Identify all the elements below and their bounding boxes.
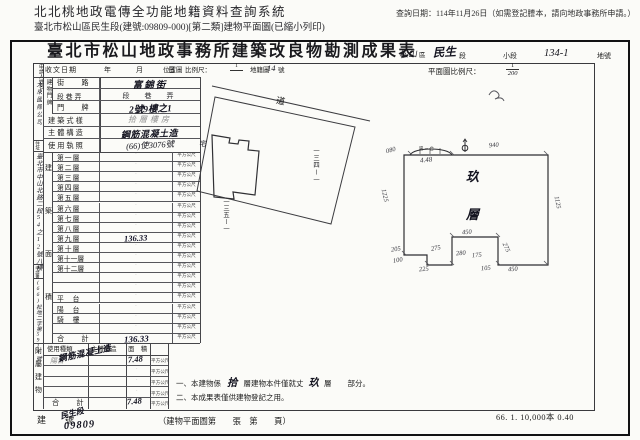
stamp-scribble bbox=[489, 91, 504, 101]
dim-205: 205 bbox=[391, 245, 402, 253]
location-scale-label: 比例尺： bbox=[185, 67, 211, 74]
hw-section-name: 民生 bbox=[433, 46, 457, 60]
street-label: 街 路 bbox=[52, 77, 100, 88]
hw-plan-scale-denominator: 200 bbox=[508, 70, 518, 77]
annex-empty-dot: · bbox=[136, 389, 138, 395]
dim-105: 105 bbox=[481, 265, 491, 273]
floor-label bbox=[52, 273, 100, 282]
area-unit: 平方公尺 bbox=[173, 293, 200, 302]
hw-lot-number: 134-1 bbox=[544, 48, 569, 60]
note-line-1: 一、本建物係拾層建物本件僅就丈玖層部分。 bbox=[176, 378, 370, 390]
grid-line bbox=[33, 343, 200, 344]
lot-number-bottom-label: 一三五ー一 bbox=[221, 198, 230, 246]
balcony-label: 陽－台 bbox=[419, 147, 435, 152]
plan-scale-numerator: 1 bbox=[506, 62, 519, 70]
lot-number-right-label: 一三四ー一 bbox=[311, 147, 320, 199]
hw-floors-total: 136.33 bbox=[123, 333, 148, 344]
hw-building-no-value: 09809 bbox=[64, 419, 96, 433]
area-unit: 平方公尺 bbox=[151, 401, 169, 406]
floor-value: · bbox=[100, 304, 173, 313]
hw-house-mark: 宅 bbox=[199, 140, 206, 148]
dim-top: 940 bbox=[489, 142, 499, 150]
hw-floor9-area: 136.33 bbox=[124, 232, 148, 243]
annex-area-header: 面 積 bbox=[128, 346, 147, 353]
floors-total-label: 合 計 bbox=[52, 334, 100, 343]
annex-empty-dot: · bbox=[136, 378, 138, 384]
application-doc-label: 申請書 bbox=[35, 266, 41, 278]
floor-label: 第八層 bbox=[52, 223, 100, 232]
floor-label: 第四層 bbox=[52, 182, 100, 191]
dim-280: 280 bbox=[456, 250, 466, 258]
lot-label: 地號 bbox=[597, 52, 611, 60]
area-unit: 平方公尺 bbox=[151, 380, 169, 385]
floor-value: · bbox=[100, 182, 173, 191]
area-unit: 平方公尺 bbox=[151, 391, 169, 396]
annex-empty-dot: · bbox=[136, 367, 138, 373]
floor-label: 第五層 bbox=[52, 192, 100, 201]
location-map-label: 位置圖 bbox=[163, 67, 183, 74]
receive-date-label: 收文日期 bbox=[45, 66, 77, 74]
floor-value: · bbox=[100, 243, 173, 252]
dim-225: 225 bbox=[419, 266, 429, 274]
dim-175: 175 bbox=[472, 252, 482, 260]
hw-application-doc-no: (66)松地二字第5914號 bbox=[34, 280, 42, 340]
area-unit: 平方公尺 bbox=[173, 324, 200, 333]
hw-note1-storeys: 拾 bbox=[227, 378, 238, 389]
main-structure-label: 主體構造 bbox=[43, 127, 100, 138]
subsection-label: 小段 bbox=[503, 52, 517, 60]
door-plate-label: 門 牌 bbox=[52, 101, 100, 113]
road-line bbox=[212, 86, 370, 121]
hw-building-style-value: 拾層樓房 bbox=[128, 115, 172, 124]
scanned-survey-document-page: { "header": { "system_title": "北北桃地政電傳全功… bbox=[0, 0, 640, 440]
hw-applicant-address: 臺北市中山北路二段54之12號八樓 bbox=[34, 153, 43, 263]
hw-district-city: 松山 bbox=[399, 48, 418, 60]
use-license-label: 使用執照 bbox=[43, 139, 100, 152]
hw-use-license-value: (66)使3076號 bbox=[126, 138, 175, 153]
floor-value: · bbox=[100, 192, 173, 201]
address-label: 住址 bbox=[35, 141, 41, 151]
floor-label: 平 台 bbox=[52, 293, 100, 302]
hw-floor-char-2: 層 bbox=[466, 208, 479, 223]
floor-label: 第九層 bbox=[52, 233, 100, 242]
area-unit: 平方公尺 bbox=[151, 369, 169, 374]
floor-label: 第三層 bbox=[52, 172, 100, 181]
location-scale-fraction: 1 bbox=[230, 63, 243, 71]
building-style-label: 建築式樣 bbox=[43, 114, 100, 126]
hw-annex-area: 7.48 bbox=[128, 354, 144, 365]
floor-label: 第十二層 bbox=[52, 263, 100, 272]
note1-text: 層 bbox=[324, 379, 332, 388]
annex-total-label: 合 計 bbox=[52, 399, 89, 407]
system-title: 北北桃地政電傳全功能地籍資料查詢系統 bbox=[34, 5, 286, 19]
floor-value: · bbox=[100, 223, 173, 232]
cadastral-unit: 號 bbox=[278, 67, 285, 74]
area-unit: 平方公尺 bbox=[151, 358, 169, 363]
note1-text: 一、本建物係 bbox=[176, 379, 221, 388]
floor-label: 第十層 bbox=[52, 243, 100, 252]
floor-value: · bbox=[100, 172, 173, 181]
floor-label: 第六層 bbox=[52, 203, 100, 212]
floor-value: · bbox=[100, 253, 173, 262]
note1-text: 部分。 bbox=[348, 379, 371, 388]
hw-cadastral-no: 14 bbox=[267, 64, 276, 74]
dim-450-bottom: 450 bbox=[508, 266, 518, 274]
note-line-2: 二、本成果表僅供建物登記之用。 bbox=[176, 394, 289, 403]
floor-value: · bbox=[100, 213, 173, 222]
area-unit: 平方公尺 bbox=[173, 304, 200, 313]
applicant-label-top: 申請人 bbox=[38, 64, 43, 79]
floor-label: 第七層 bbox=[52, 213, 100, 222]
form-title: 臺北市松山地政事務所建築改良物勘測成果表 bbox=[47, 43, 417, 61]
floor-value: · bbox=[100, 152, 173, 161]
grid-line bbox=[33, 151, 43, 152]
floor-label: 騎 樓 bbox=[52, 314, 100, 323]
hw-floor-char-1: 玖 bbox=[466, 170, 479, 185]
district-label: 區 bbox=[419, 52, 426, 59]
floor-value: · bbox=[100, 203, 173, 212]
hw-annex-total: 7.48 bbox=[127, 396, 143, 407]
plan-page-note: （建物平面圖第 張 第 頁） bbox=[158, 417, 291, 427]
survey-drawings bbox=[180, 80, 600, 290]
north-arrow-icon bbox=[462, 139, 468, 152]
grid-line bbox=[168, 343, 169, 409]
floor-label bbox=[52, 283, 100, 292]
floor-value: · bbox=[100, 314, 173, 323]
plan-scale-label: 平面圖比例尺： bbox=[428, 68, 481, 77]
doc-info-line: 臺北市松山區民生段(建號:09809-000)[第二類]建物平面圖(已縮小列印) bbox=[34, 23, 325, 34]
floor-value: · bbox=[100, 283, 173, 292]
note1-text: 層建物本件僅就丈 bbox=[244, 379, 304, 388]
floor-value: · bbox=[100, 162, 173, 171]
floor-value: · bbox=[100, 273, 173, 282]
floor-label: 第十一層 bbox=[52, 253, 100, 262]
dim-notch-top: 450 bbox=[462, 229, 472, 237]
area-unit: 平方公尺 bbox=[173, 314, 200, 323]
hw-note1-floor: 玖 bbox=[309, 378, 320, 389]
building-footprint bbox=[212, 135, 259, 199]
query-date: 查詢日期：114年11月26日（如需登記謄本，請向地政事務所申請。） bbox=[396, 9, 635, 18]
floor-label: 陽 台 bbox=[52, 304, 100, 313]
annex-building-vlabel: 附屬建物 bbox=[34, 347, 44, 407]
section-label: 段 bbox=[459, 52, 466, 60]
floor-value: · bbox=[100, 293, 173, 302]
floor-value: · bbox=[100, 263, 173, 272]
applicant-label: 申請人姓名 bbox=[33, 64, 43, 78]
area-unit: 平方公尺 bbox=[173, 334, 200, 343]
section-lane-label: 段巷弄 bbox=[52, 89, 100, 100]
floor-label bbox=[52, 324, 100, 333]
floor-label: 第一層 bbox=[52, 152, 100, 161]
floor-label: 第二層 bbox=[52, 162, 100, 171]
print-edition-note: 66. 1. 10,000本 0.40 bbox=[496, 413, 574, 423]
floor-value: · bbox=[100, 324, 173, 333]
hw-applicant-name: 大來國際公司 bbox=[34, 81, 43, 139]
dim-balcony-width: 4.48 bbox=[420, 155, 433, 164]
